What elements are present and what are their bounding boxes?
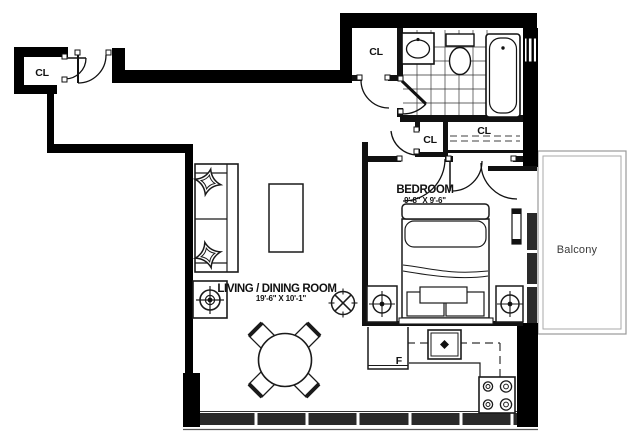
fridge: F (368, 327, 408, 369)
kitchen-sink (428, 330, 461, 359)
bedroom-label: BEDROOM (396, 184, 453, 196)
living-dining-dims: 19'-6" X 10'-1" (256, 294, 307, 303)
wide-closet-label: CL (477, 125, 491, 137)
fridge-label: F (396, 355, 403, 367)
balcony-label: Balcony (557, 244, 598, 256)
bed-bench (399, 318, 493, 324)
dining-set (249, 323, 320, 397)
sofa (192, 164, 238, 272)
bed (399, 204, 493, 324)
balcony-door-leaf (512, 209, 521, 244)
hall-closet-label: CL (369, 46, 383, 58)
entry-closet-label: CL (35, 67, 49, 79)
floorplan-page: Balcony (0, 0, 640, 444)
small-closet-label: CL (423, 134, 437, 146)
nightstand-lamp-left (367, 286, 397, 322)
bathroom-window-icon (525, 38, 537, 62)
bedroom-dims: 9'-8" X 9'-6" (404, 196, 446, 205)
nightstand-lamp-right (496, 286, 523, 322)
paper-background (0, 0, 640, 444)
bathtub (486, 34, 520, 117)
bathroom-sink (402, 33, 434, 64)
dining-table (259, 334, 312, 387)
coffee-table (269, 184, 303, 252)
right-window-wall (527, 213, 537, 323)
floorplan-drawing: Balcony (0, 0, 640, 444)
stove (479, 377, 515, 413)
